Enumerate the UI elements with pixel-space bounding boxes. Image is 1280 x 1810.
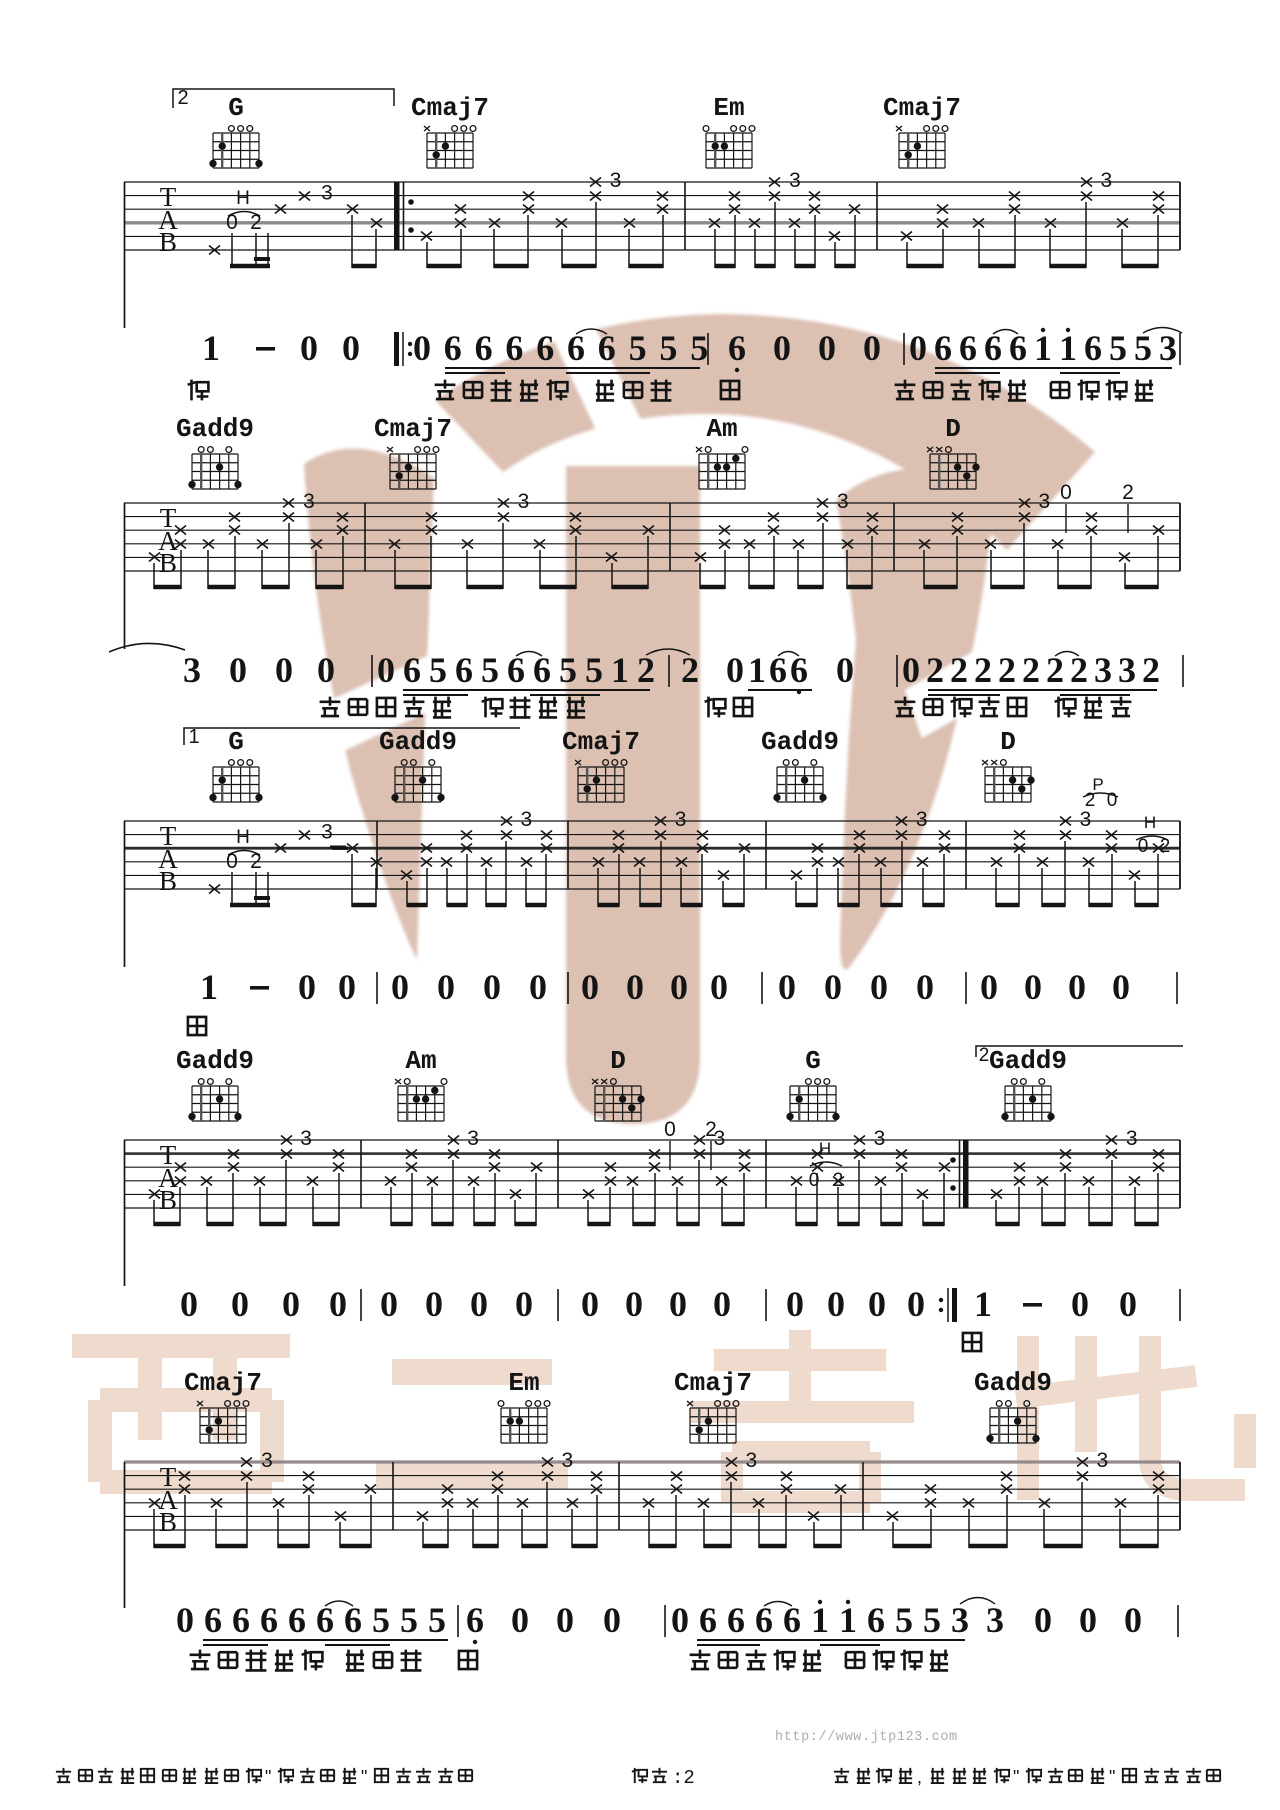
svg-text:0: 0 bbox=[317, 650, 335, 690]
svg-text:0: 0 bbox=[1071, 1284, 1089, 1324]
svg-text:0: 0 bbox=[377, 650, 395, 690]
svg-text:2: 2 bbox=[681, 650, 699, 690]
svg-text:6: 6 bbox=[288, 1600, 306, 1640]
svg-text:6: 6 bbox=[867, 1600, 885, 1640]
svg-text:0: 0 bbox=[1034, 1600, 1052, 1640]
svg-text:0: 0 bbox=[1060, 481, 1072, 504]
svg-text:0: 0 bbox=[1112, 967, 1130, 1007]
svg-text:0: 0 bbox=[1119, 1284, 1137, 1324]
svg-text:0: 0 bbox=[868, 1284, 886, 1324]
svg-text:0: 0 bbox=[180, 1284, 198, 1324]
svg-text:0: 0 bbox=[626, 967, 644, 1007]
svg-text:6: 6 bbox=[232, 1600, 250, 1640]
svg-text:2: 2 bbox=[998, 650, 1016, 690]
svg-text:3: 3 bbox=[518, 490, 530, 513]
svg-text:0: 0 bbox=[425, 1284, 443, 1324]
svg-text:3: 3 bbox=[1038, 490, 1050, 513]
svg-text:0: 0 bbox=[664, 1118, 676, 1141]
svg-text:": " bbox=[265, 1767, 271, 1787]
svg-text:1: 1 bbox=[811, 1600, 829, 1640]
svg-text:0: 0 bbox=[726, 650, 744, 690]
svg-text:0: 0 bbox=[778, 967, 796, 1007]
svg-text:6: 6 bbox=[934, 328, 952, 368]
svg-text:5: 5 bbox=[559, 650, 577, 690]
svg-text:3: 3 bbox=[321, 182, 333, 205]
svg-text:0: 0 bbox=[275, 650, 293, 690]
svg-text:2: 2 bbox=[950, 650, 968, 690]
svg-text:3: 3 bbox=[610, 169, 622, 192]
svg-text:3: 3 bbox=[675, 808, 687, 831]
svg-text:3: 3 bbox=[183, 650, 201, 690]
svg-text:1: 1 bbox=[974, 1284, 992, 1324]
svg-text:0: 0 bbox=[1024, 967, 1042, 1007]
svg-text:3: 3 bbox=[951, 1600, 969, 1640]
svg-text:6: 6 bbox=[444, 328, 462, 368]
svg-text:0: 0 bbox=[809, 1170, 820, 1191]
svg-text:2: 2 bbox=[177, 87, 188, 109]
svg-text:0: 0 bbox=[669, 1284, 687, 1324]
svg-text:6: 6 bbox=[475, 328, 493, 368]
svg-text:3: 3 bbox=[745, 1449, 757, 1472]
svg-text:H: H bbox=[236, 827, 250, 848]
svg-text:0: 0 bbox=[176, 1600, 194, 1640]
svg-text:0: 0 bbox=[863, 328, 881, 368]
svg-text:6: 6 bbox=[455, 650, 473, 690]
svg-text:0: 0 bbox=[827, 1284, 845, 1324]
svg-text:5: 5 bbox=[372, 1600, 390, 1640]
svg-text:0: 0 bbox=[1107, 790, 1118, 811]
svg-text:6: 6 bbox=[1084, 328, 1102, 368]
svg-text:3: 3 bbox=[261, 1449, 273, 1472]
svg-text:B: B bbox=[159, 548, 177, 578]
svg-text:0: 0 bbox=[515, 1284, 533, 1324]
svg-text:2: 2 bbox=[1085, 790, 1096, 811]
svg-text:0: 0 bbox=[581, 1284, 599, 1324]
svg-text:0: 0 bbox=[824, 967, 842, 1007]
svg-text:3: 3 bbox=[789, 169, 801, 192]
svg-text:0: 0 bbox=[483, 967, 501, 1007]
svg-text:6: 6 bbox=[699, 1600, 717, 1640]
svg-text::2: :2 bbox=[672, 1767, 695, 1789]
svg-text:3: 3 bbox=[1094, 650, 1112, 690]
svg-text:http://www.jtp123.com: http://www.jtp123.com bbox=[775, 1730, 958, 1745]
svg-text:3: 3 bbox=[561, 1449, 573, 1472]
svg-text:5: 5 bbox=[585, 650, 603, 690]
svg-text:1: 1 bbox=[1034, 328, 1052, 368]
svg-text:3: 3 bbox=[874, 1127, 886, 1150]
svg-text:3: 3 bbox=[321, 821, 333, 844]
svg-text:0: 0 bbox=[226, 850, 238, 873]
svg-text:0: 0 bbox=[1068, 967, 1086, 1007]
svg-text:0: 0 bbox=[818, 328, 836, 368]
svg-text:0: 0 bbox=[836, 650, 854, 690]
svg-text:0: 0 bbox=[916, 967, 934, 1007]
svg-text:0: 0 bbox=[980, 967, 998, 1007]
svg-text:0: 0 bbox=[282, 1284, 300, 1324]
svg-text:H: H bbox=[819, 1139, 831, 1158]
svg-text:5: 5 bbox=[481, 650, 499, 690]
svg-text:0: 0 bbox=[870, 967, 888, 1007]
svg-text:": " bbox=[361, 1767, 367, 1787]
svg-text:0: 0 bbox=[710, 967, 728, 1007]
svg-text:0: 0 bbox=[300, 328, 318, 368]
svg-text:0: 0 bbox=[391, 967, 409, 1007]
svg-text:2: 2 bbox=[1122, 481, 1134, 504]
svg-text:6: 6 bbox=[536, 328, 554, 368]
svg-text:3: 3 bbox=[1159, 328, 1177, 368]
svg-text:H: H bbox=[1144, 813, 1156, 832]
svg-text:1: 1 bbox=[611, 650, 629, 690]
svg-text:1: 1 bbox=[200, 967, 218, 1007]
svg-text:5: 5 bbox=[690, 328, 708, 368]
svg-text:6: 6 bbox=[204, 1600, 222, 1640]
svg-text:3: 3 bbox=[1126, 1127, 1138, 1150]
svg-text:B: B bbox=[159, 866, 177, 896]
svg-text:0: 0 bbox=[329, 1284, 347, 1324]
svg-text:1: 1 bbox=[202, 328, 220, 368]
svg-text:5: 5 bbox=[1109, 328, 1127, 368]
svg-text:": " bbox=[1013, 1767, 1019, 1787]
svg-text:5: 5 bbox=[923, 1600, 941, 1640]
svg-text:0: 0 bbox=[437, 967, 455, 1007]
svg-text:0: 0 bbox=[338, 967, 356, 1007]
svg-text:6: 6 bbox=[727, 1600, 745, 1640]
svg-text:0: 0 bbox=[786, 1284, 804, 1324]
svg-text:1: 1 bbox=[1059, 328, 1077, 368]
svg-text:2: 2 bbox=[926, 650, 944, 690]
svg-text:2: 2 bbox=[1022, 650, 1040, 690]
svg-text:0: 0 bbox=[298, 967, 316, 1007]
svg-text:3: 3 bbox=[1118, 650, 1136, 690]
svg-text:2: 2 bbox=[833, 1170, 844, 1191]
svg-text:3: 3 bbox=[303, 490, 315, 513]
svg-text:3: 3 bbox=[520, 808, 532, 831]
svg-text:2: 2 bbox=[979, 1045, 990, 1066]
svg-text:0: 0 bbox=[713, 1284, 731, 1324]
svg-text:0: 0 bbox=[511, 1600, 529, 1640]
svg-text:0: 0 bbox=[902, 650, 920, 690]
svg-text:0: 0 bbox=[1124, 1600, 1142, 1640]
svg-text:H: H bbox=[236, 188, 250, 209]
svg-text:0: 0 bbox=[380, 1284, 398, 1324]
svg-text:2: 2 bbox=[974, 650, 992, 690]
svg-text:0: 0 bbox=[625, 1284, 643, 1324]
svg-text:0: 0 bbox=[226, 211, 238, 234]
svg-text:0: 0 bbox=[1138, 836, 1149, 857]
svg-text:0: 0 bbox=[342, 328, 360, 368]
svg-text:0: 0 bbox=[556, 1600, 574, 1640]
svg-text:5: 5 bbox=[429, 650, 447, 690]
svg-text:0: 0 bbox=[670, 967, 688, 1007]
svg-text:3: 3 bbox=[986, 1600, 1004, 1640]
svg-text:0: 0 bbox=[229, 650, 247, 690]
svg-text:": " bbox=[1109, 1767, 1115, 1787]
svg-text:5: 5 bbox=[895, 1600, 913, 1640]
svg-text:1: 1 bbox=[839, 1600, 857, 1640]
svg-text:0: 0 bbox=[1079, 1600, 1097, 1640]
svg-text:B: B bbox=[159, 1507, 177, 1537]
svg-text:0: 0 bbox=[413, 328, 431, 368]
svg-text:0: 0 bbox=[529, 967, 547, 1007]
svg-text:3: 3 bbox=[916, 808, 928, 831]
svg-text:6: 6 bbox=[959, 328, 977, 368]
svg-text:2: 2 bbox=[250, 211, 262, 234]
svg-text:3: 3 bbox=[1096, 1449, 1108, 1472]
svg-text:6: 6 bbox=[260, 1600, 278, 1640]
svg-text:0: 0 bbox=[773, 328, 791, 368]
svg-text:2: 2 bbox=[250, 850, 262, 873]
svg-text:3: 3 bbox=[1100, 169, 1112, 192]
svg-text:0: 0 bbox=[581, 967, 599, 1007]
svg-text:2: 2 bbox=[705, 1118, 717, 1141]
svg-text:3: 3 bbox=[1080, 808, 1092, 831]
svg-text:2: 2 bbox=[1160, 836, 1171, 857]
svg-text:6: 6 bbox=[505, 328, 523, 368]
svg-text:3: 3 bbox=[300, 1127, 312, 1150]
svg-text:0: 0 bbox=[470, 1284, 488, 1324]
svg-text:5: 5 bbox=[400, 1600, 418, 1640]
svg-text:0: 0 bbox=[909, 328, 927, 368]
svg-text:3: 3 bbox=[467, 1127, 479, 1150]
svg-text:6: 6 bbox=[403, 650, 421, 690]
svg-text:0: 0 bbox=[671, 1600, 689, 1640]
svg-text:,: , bbox=[917, 1767, 922, 1787]
svg-text:6: 6 bbox=[466, 1600, 484, 1640]
svg-text:1: 1 bbox=[188, 726, 199, 748]
svg-text:2: 2 bbox=[637, 650, 655, 690]
svg-text:5: 5 bbox=[659, 328, 677, 368]
svg-text:0: 0 bbox=[603, 1600, 621, 1640]
svg-text:0: 0 bbox=[907, 1284, 925, 1324]
svg-text:5: 5 bbox=[428, 1600, 446, 1640]
svg-text:6: 6 bbox=[728, 328, 746, 368]
svg-text:5: 5 bbox=[1134, 328, 1152, 368]
svg-text:B: B bbox=[159, 1185, 177, 1215]
svg-text:3: 3 bbox=[837, 490, 849, 513]
svg-text:2: 2 bbox=[1142, 650, 1160, 690]
svg-text:B: B bbox=[159, 227, 177, 257]
svg-text:5: 5 bbox=[629, 328, 647, 368]
svg-text:1: 1 bbox=[748, 650, 766, 690]
svg-text:0: 0 bbox=[231, 1284, 249, 1324]
